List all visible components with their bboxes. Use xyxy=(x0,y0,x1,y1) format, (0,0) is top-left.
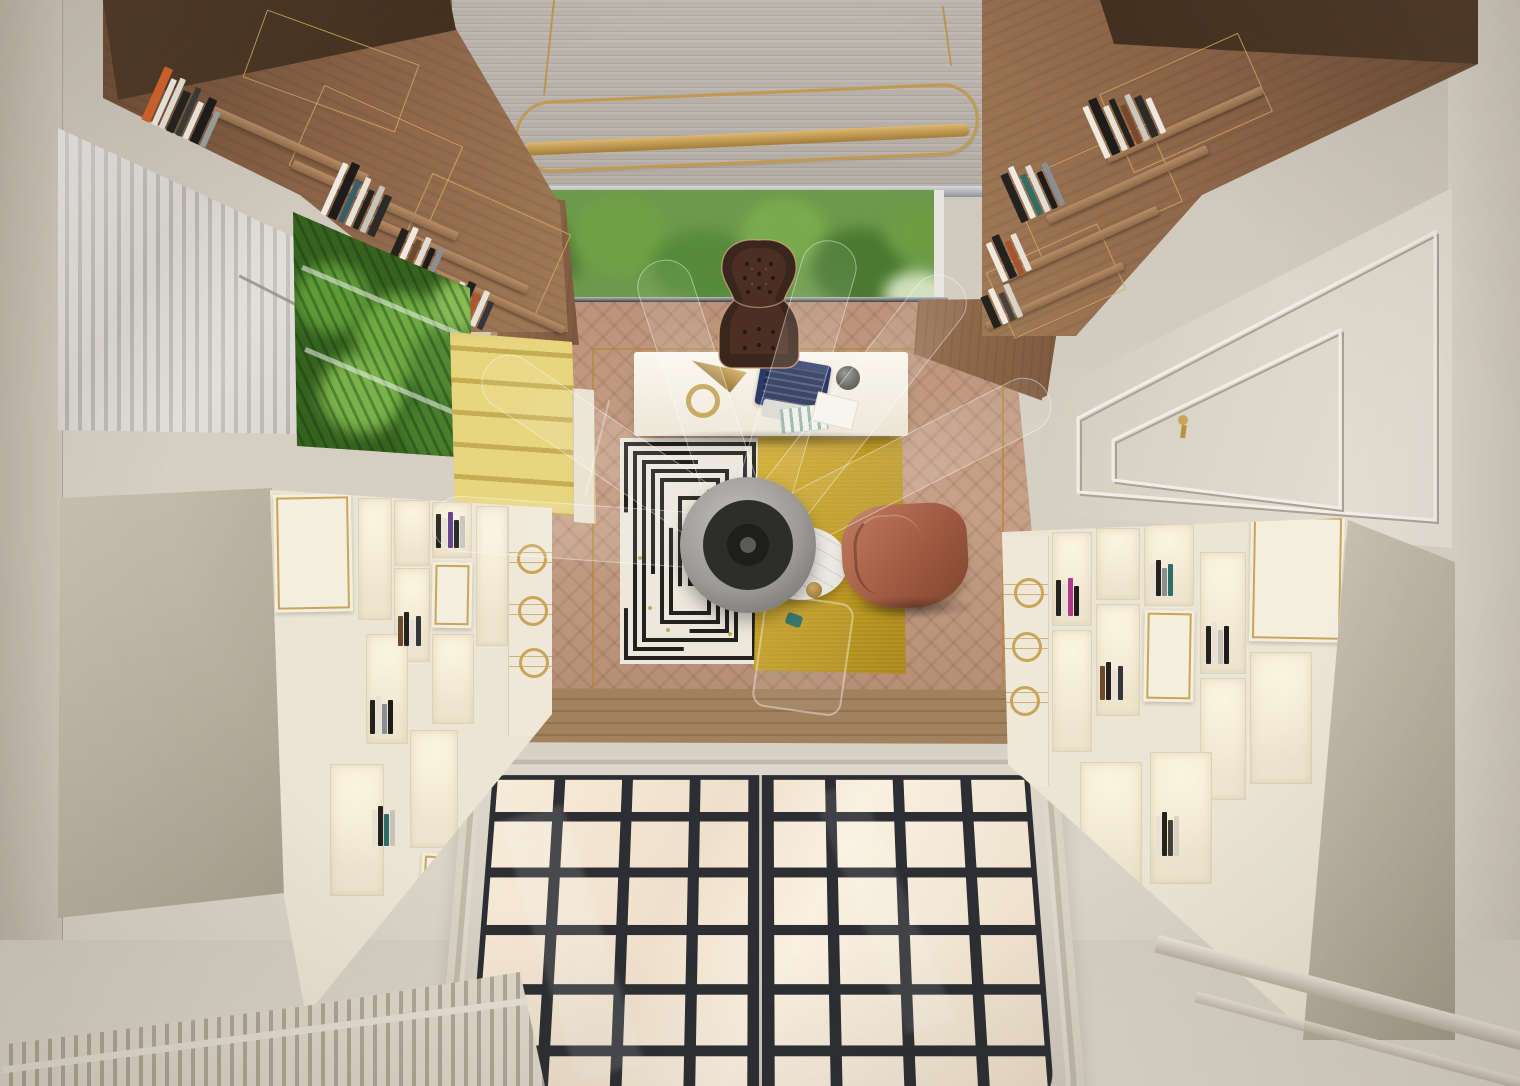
book-stack xyxy=(1056,578,1079,616)
brass-ring-pull xyxy=(1010,686,1040,716)
book-stack xyxy=(1206,622,1229,664)
book-stack xyxy=(398,612,421,646)
book-stack xyxy=(1150,560,1173,596)
ring-drawer-panel xyxy=(1002,536,1049,786)
brass-ring-pull xyxy=(518,596,548,626)
fan-hub-cap xyxy=(740,537,756,553)
shelf-cell xyxy=(1250,652,1312,784)
table-gold-bowl xyxy=(806,582,822,598)
gold-framed-door xyxy=(1143,610,1195,703)
acrylic-chair xyxy=(751,592,856,717)
gold-framed-door xyxy=(273,493,353,612)
armchair-seam xyxy=(852,513,926,597)
shelf-cell xyxy=(1096,528,1140,600)
glazed-floor-grid xyxy=(466,775,1056,1086)
shelf-cell xyxy=(394,500,430,566)
left-wall-edge xyxy=(0,0,63,1086)
book-stack xyxy=(1100,662,1123,700)
brass-ring-pull xyxy=(1012,632,1042,662)
shelf-cell xyxy=(410,730,458,848)
book-stack xyxy=(370,696,393,734)
gold-framed-door xyxy=(431,562,472,629)
bookcase-left-top-panel xyxy=(58,486,288,926)
armchair-shadow xyxy=(850,596,980,618)
shelf-cell xyxy=(358,498,392,620)
room-render xyxy=(0,0,1520,1086)
center-mullion xyxy=(747,775,775,1086)
book-stack xyxy=(372,806,395,846)
shelf-cell xyxy=(1052,630,1092,752)
shelf-cell xyxy=(432,634,474,724)
gold-framed-door xyxy=(1249,513,1345,643)
brass-ring-pull xyxy=(1014,578,1044,608)
brass-ring-pull xyxy=(519,648,549,678)
book-stack xyxy=(1156,812,1179,856)
